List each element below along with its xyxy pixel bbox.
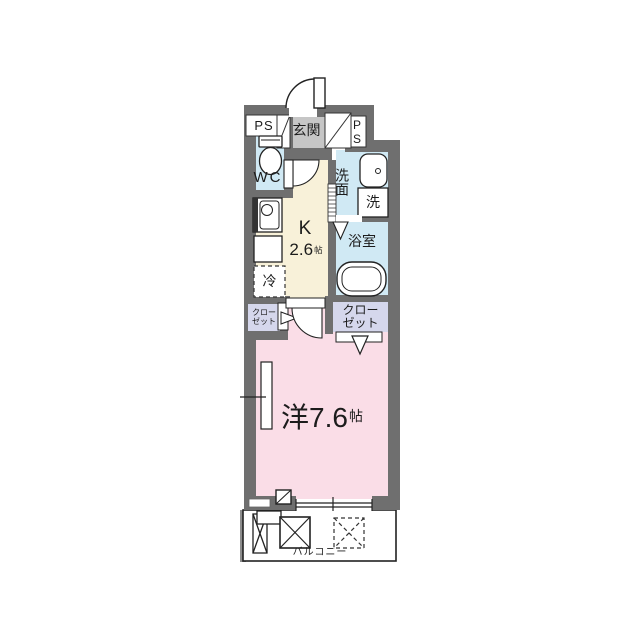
washbasin-icon	[360, 154, 387, 187]
kitchen-size-label: 2.6帖	[282, 240, 330, 260]
main-room-unit: 帖	[349, 406, 363, 426]
fridge-label: 冷	[254, 271, 285, 291]
washroom-label: 洗面	[334, 160, 350, 204]
ps-right-label: PS	[348, 116, 366, 147]
kitchen-type-label: K	[292, 218, 318, 240]
main-room-label: 洋7.6帖	[256, 396, 388, 436]
floorplan: PS PS 玄関 WC 洗面 洗 浴室 K 2.6帖 冷 クロー ゼット クロー…	[0, 0, 640, 640]
bathtub-icon	[337, 262, 386, 296]
wc-label: WC	[250, 168, 286, 186]
balcony-window	[296, 497, 372, 511]
entrance-label: 玄関	[288, 121, 325, 139]
bathroom-label: 浴室	[340, 233, 384, 249]
washer-label: 洗	[358, 191, 388, 213]
wall-slot	[249, 499, 270, 507]
balcony-label: バルコニー	[278, 544, 362, 557]
kitchen-size-value: 2.6	[289, 240, 313, 260]
room-door-lintel	[286, 298, 325, 308]
kitchen-counter-lower	[254, 236, 282, 262]
closet-left-label: クロー ゼット	[248, 306, 280, 329]
corner-mark-icon	[276, 490, 291, 504]
main-room-size: 洋7.6	[281, 396, 348, 436]
closet-right-label: クロー ゼット	[333, 303, 388, 331]
kitchen-size-unit: 帖	[314, 244, 323, 256]
ps-left-label: PS	[246, 115, 282, 136]
kitchen-counter-icon	[253, 198, 282, 262]
entrance-door-panel	[314, 78, 325, 108]
